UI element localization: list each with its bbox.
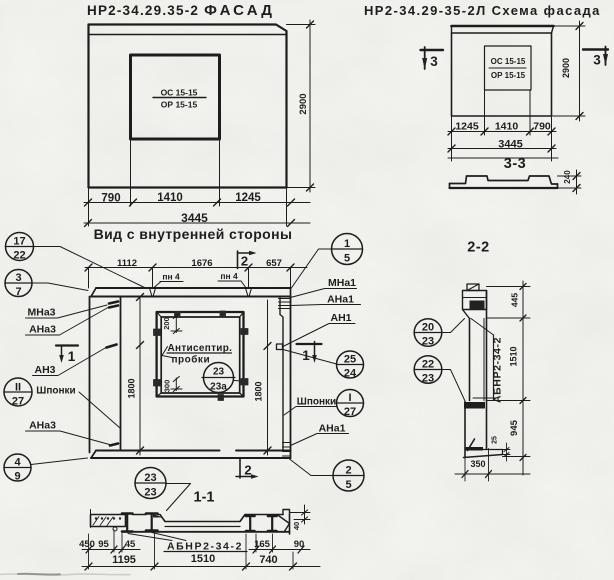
svg-text:ОС 15-15: ОС 15-15 (161, 88, 198, 98)
svg-text:1510: 1510 (509, 346, 519, 366)
svg-text:2-2: 2-2 (467, 240, 489, 256)
svg-text:2: 2 (241, 254, 248, 269)
svg-text:АБНР2-34-2: АБНР2-34-2 (167, 541, 243, 553)
svg-text:4: 4 (14, 457, 21, 469)
svg-text:1: 1 (344, 238, 350, 250)
svg-text:20: 20 (422, 322, 434, 334)
svg-text:23а: 23а (210, 382, 227, 393)
svg-text:24: 24 (344, 368, 357, 380)
svg-text:пробки: пробки (172, 354, 211, 366)
svg-text:1800: 1800 (127, 378, 137, 398)
svg-text:1245: 1245 (455, 121, 479, 133)
svg-text:АНа3: АНа3 (29, 420, 56, 432)
svg-text:23: 23 (422, 336, 434, 348)
svg-text:240: 240 (563, 170, 572, 184)
svg-text:АНа3: АНа3 (29, 324, 56, 336)
svg-text:НР2-34.29.35-2 ФАСАД: НР2-34.29.35-2 ФАСАД (87, 2, 275, 19)
svg-text:450: 450 (79, 539, 95, 550)
svg-text:ОР 15-15: ОР 15-15 (491, 71, 526, 80)
svg-text:17: 17 (13, 236, 25, 248)
svg-text:1245: 1245 (235, 192, 261, 204)
svg-text:3445: 3445 (181, 211, 208, 225)
svg-text:НР2-34.29-35-2Л Схема фасада: НР2-34.29-35-2Л Схема фасада (364, 3, 601, 18)
svg-text:Шпонки: Шпонки (297, 397, 336, 408)
svg-text:ОР 15-15: ОР 15-15 (161, 100, 198, 110)
svg-text:Вид с внутренней стороны: Вид с внутренней стороны (94, 226, 293, 242)
svg-text:АНа1: АНа1 (327, 294, 354, 306)
svg-text:5: 5 (345, 479, 351, 491)
svg-text:3: 3 (15, 272, 21, 284)
svg-text:95: 95 (98, 539, 109, 550)
svg-text:40: 40 (292, 522, 301, 530)
svg-text:945: 945 (509, 419, 520, 436)
svg-text:445: 445 (510, 293, 520, 307)
svg-text:ОС 15-15: ОС 15-15 (491, 57, 526, 66)
svg-text:45: 45 (125, 539, 136, 550)
svg-text:790: 790 (533, 121, 551, 133)
svg-text:23: 23 (213, 367, 225, 378)
svg-text:3445: 3445 (498, 139, 522, 151)
svg-text:23: 23 (144, 487, 156, 499)
svg-text:27: 27 (12, 396, 24, 408)
svg-text:200: 200 (162, 317, 171, 330)
svg-text:1410: 1410 (157, 192, 183, 204)
svg-text:9: 9 (14, 471, 20, 483)
svg-text:1676: 1676 (191, 258, 212, 269)
svg-text:3-3: 3-3 (504, 156, 526, 172)
svg-text:22: 22 (13, 250, 25, 262)
svg-text:АН3: АН3 (34, 364, 55, 376)
svg-text:МНа3: МНа3 (27, 307, 55, 319)
svg-text:25: 25 (492, 436, 499, 444)
svg-text:АБНР2-34-2: АБНР2-34-2 (492, 337, 504, 403)
svg-text:23: 23 (144, 472, 156, 484)
svg-text:1: 1 (302, 348, 310, 363)
svg-text:7: 7 (15, 286, 21, 298)
svg-text:5: 5 (344, 253, 350, 265)
svg-text:90: 90 (294, 539, 305, 550)
svg-text:1112: 1112 (117, 258, 137, 269)
svg-text:22: 22 (422, 359, 434, 371)
svg-text:1: 1 (68, 349, 76, 364)
svg-text:3: 3 (593, 53, 601, 68)
svg-text:790: 790 (101, 193, 120, 205)
svg-text:25: 25 (344, 354, 356, 366)
svg-text:300: 300 (163, 380, 172, 393)
svg-text:2900: 2900 (298, 93, 309, 114)
svg-text:пн 4: пн 4 (162, 272, 180, 282)
svg-text:27: 27 (344, 406, 356, 418)
svg-text:165: 165 (254, 539, 271, 550)
svg-text:МНа1: МНа1 (328, 277, 356, 289)
svg-text:350: 350 (470, 459, 485, 469)
svg-text:Антисептир.: Антисептир. (168, 343, 233, 354)
svg-text:АН1: АН1 (330, 312, 351, 324)
svg-text:пн 4: пн 4 (220, 271, 238, 281)
svg-text:1800: 1800 (254, 381, 264, 401)
svg-text:1410: 1410 (495, 121, 519, 133)
svg-text:3: 3 (430, 54, 438, 69)
svg-text:2: 2 (244, 463, 251, 478)
svg-text:1195: 1195 (112, 554, 136, 566)
svg-text:1-1: 1-1 (194, 490, 215, 506)
svg-text:2: 2 (345, 465, 351, 477)
svg-text:2900: 2900 (561, 58, 571, 78)
svg-text:I: I (348, 392, 351, 404)
svg-text:740: 740 (259, 554, 277, 566)
svg-text:II: II (15, 382, 21, 394)
svg-text:1510: 1510 (191, 553, 215, 565)
svg-text:АНа1: АНа1 (319, 423, 346, 435)
svg-text:23: 23 (422, 373, 434, 385)
svg-text:657: 657 (266, 258, 282, 269)
svg-text:Шпонки: Шпонки (36, 386, 75, 397)
